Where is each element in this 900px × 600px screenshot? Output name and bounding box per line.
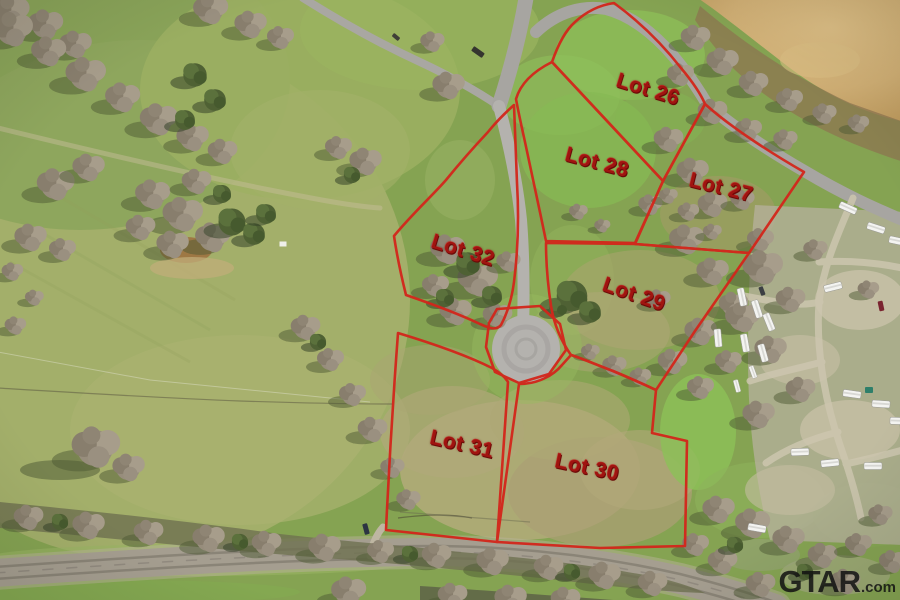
aerial-photo-canvas xyxy=(0,0,900,600)
vignette xyxy=(0,0,900,600)
watermark-logo: GTAR .com xyxy=(778,564,896,600)
watermark-brand: GTAR xyxy=(778,564,860,600)
aerial-photo: Lot 26 Lot 27 Lot 28 Lot 29 Lot 30 Lot 3… xyxy=(0,0,900,600)
watermark-suffix: .com xyxy=(861,579,896,596)
